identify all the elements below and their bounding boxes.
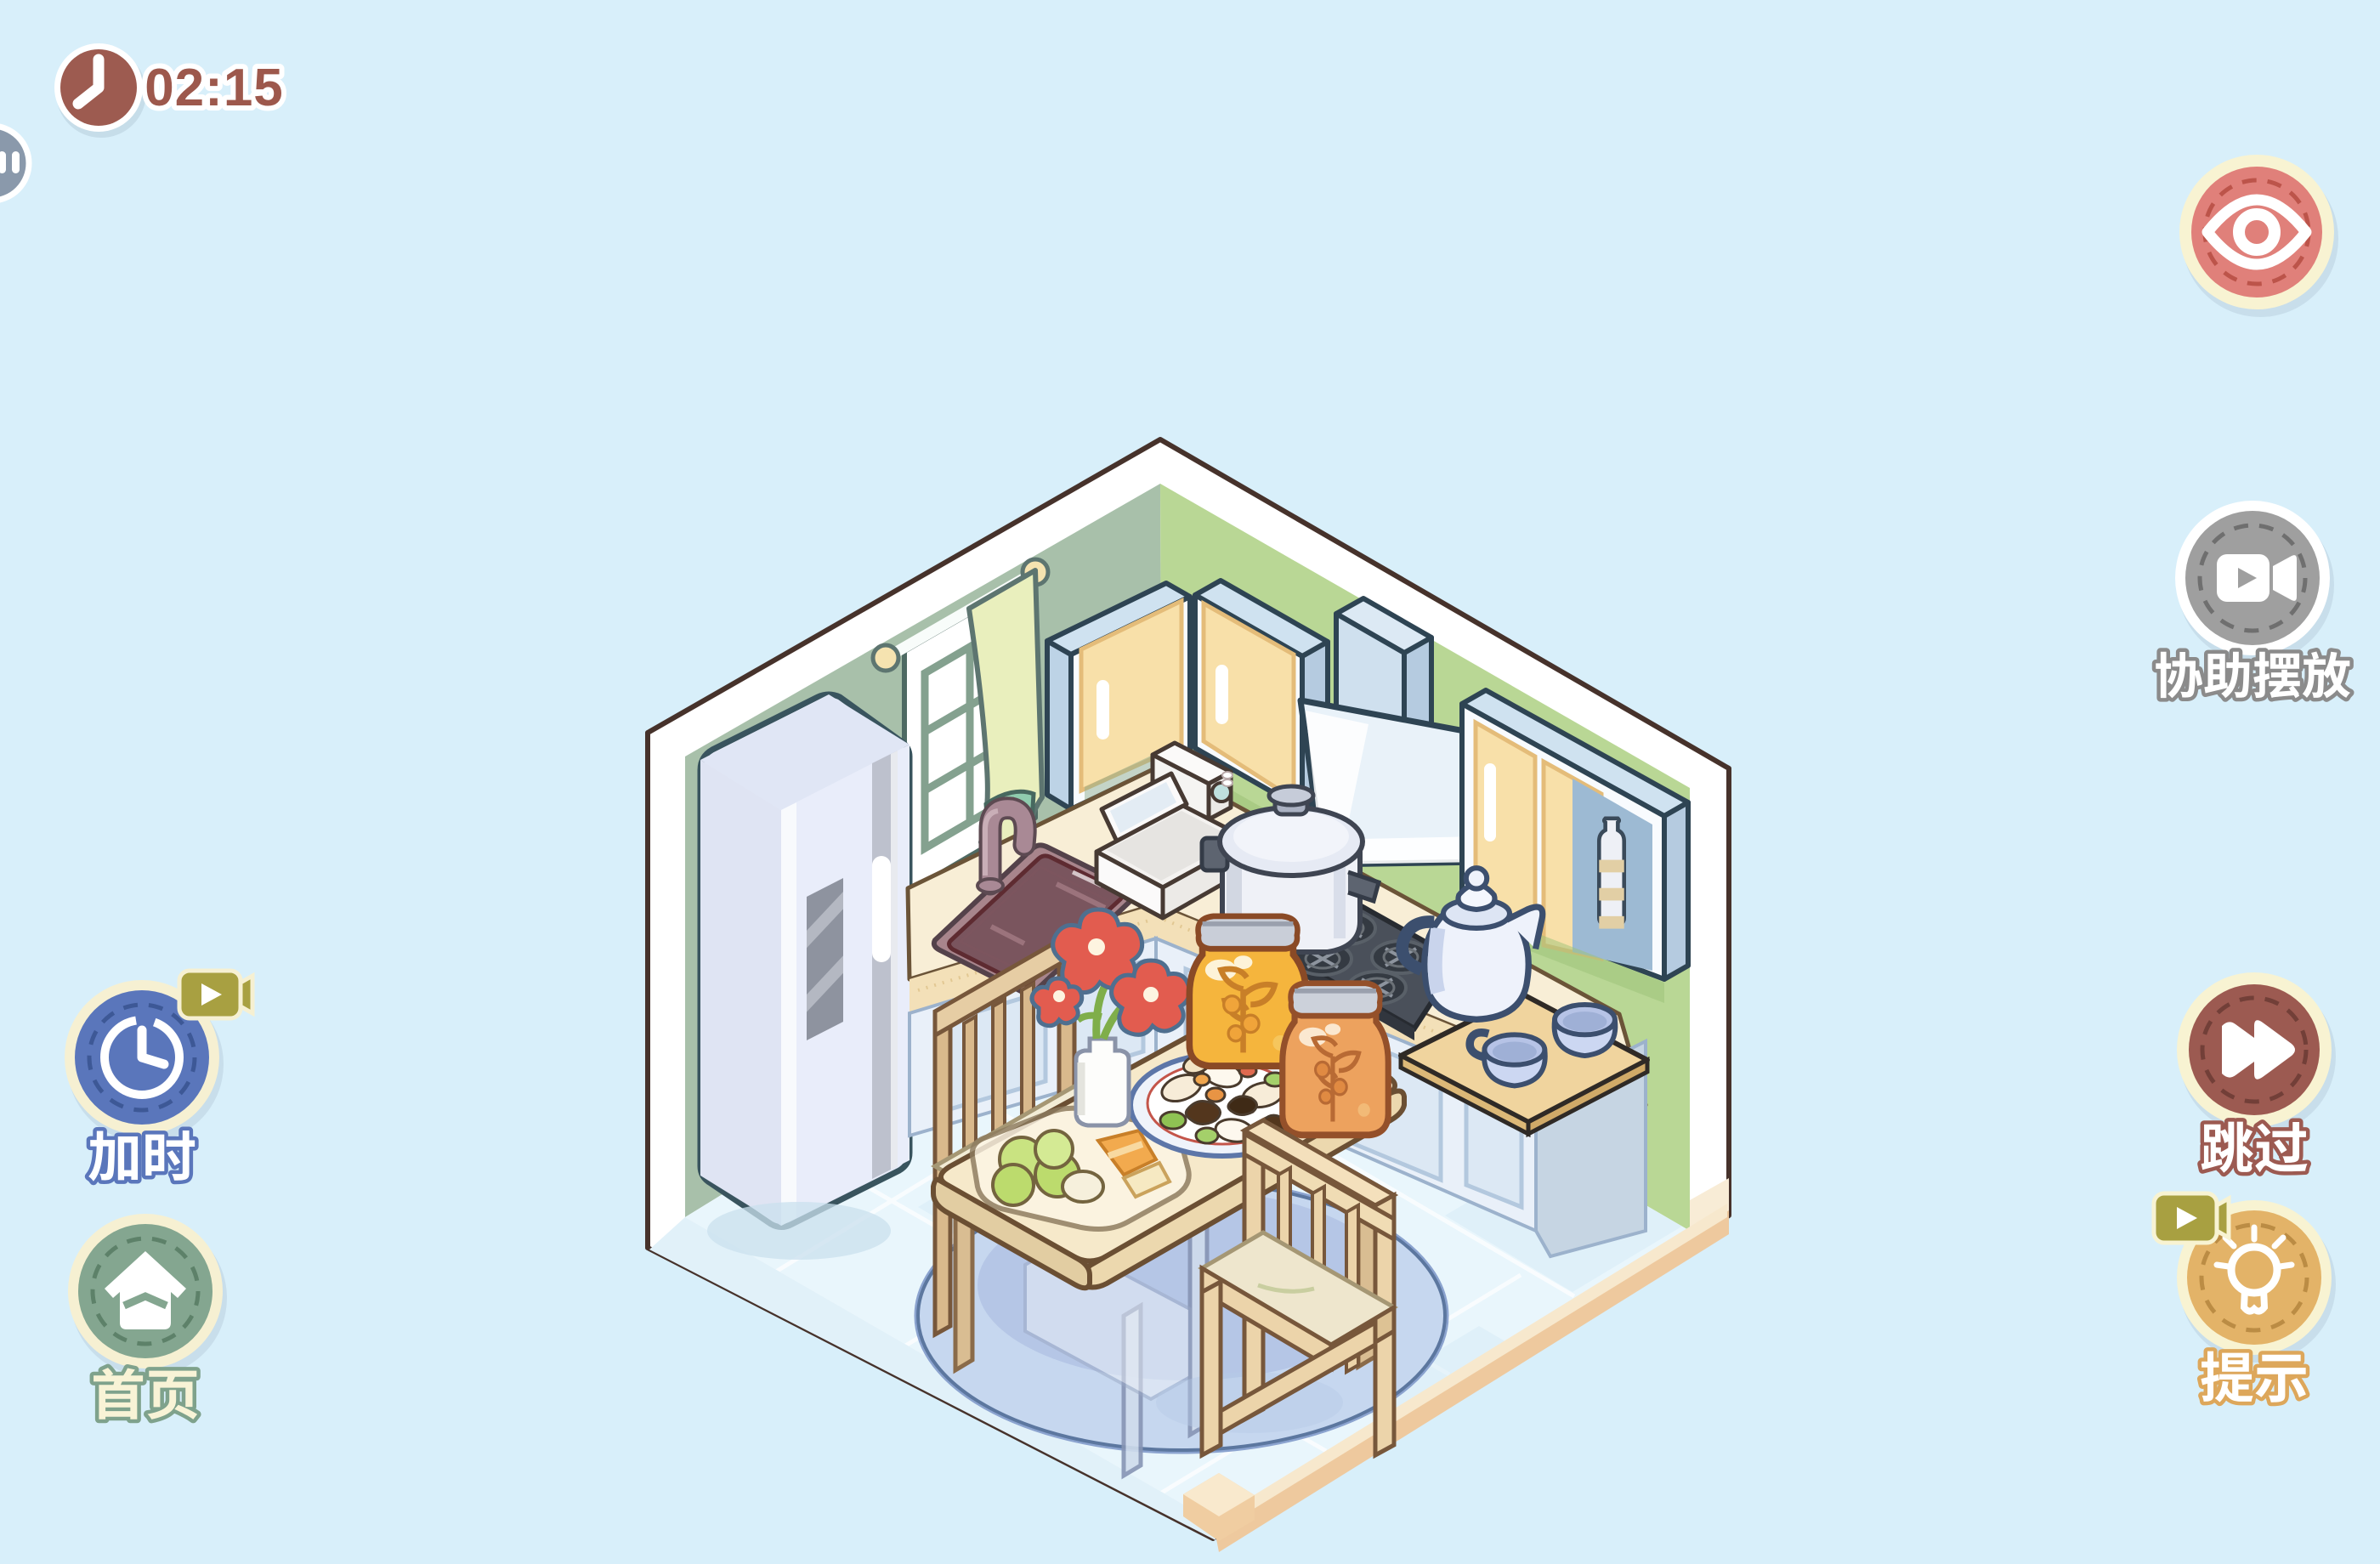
svg-text:02:15: 02:15 (144, 59, 284, 117)
